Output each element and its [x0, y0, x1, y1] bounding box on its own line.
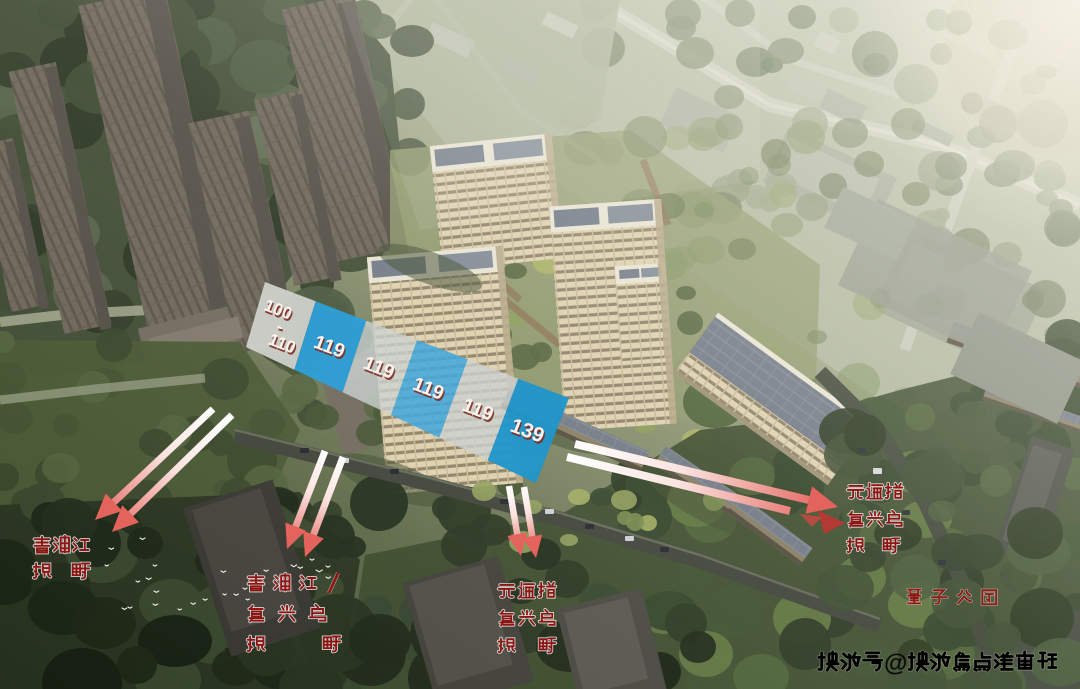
- svg-text:@: @: [884, 650, 907, 677]
